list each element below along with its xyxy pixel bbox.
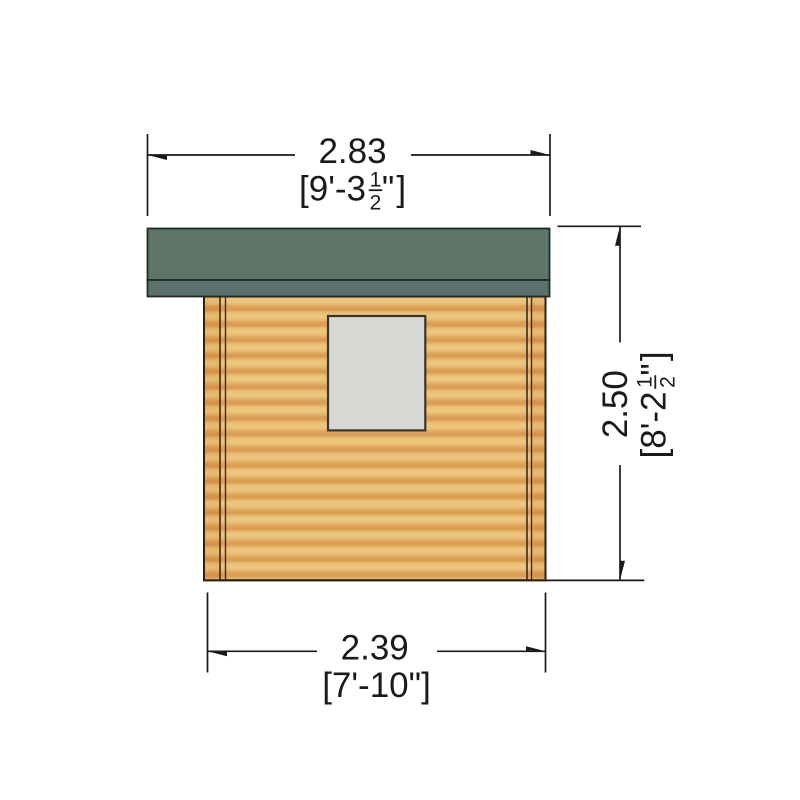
svg-text:1: 1 bbox=[370, 168, 382, 191]
svg-text:1: 1 bbox=[633, 376, 656, 388]
svg-text:2.50: 2.50 bbox=[596, 370, 635, 438]
svg-text:[8'-2: [8'-2 bbox=[635, 392, 674, 459]
svg-text:[9'-3: [9'-3 bbox=[299, 170, 366, 209]
svg-text:2.39: 2.39 bbox=[341, 629, 409, 668]
svg-text:2: 2 bbox=[370, 191, 382, 214]
svg-text:"]: "] bbox=[382, 170, 408, 209]
svg-text:2: 2 bbox=[656, 376, 679, 388]
svg-text:[7'-10"]: [7'-10"] bbox=[322, 666, 431, 705]
svg-text:2.83: 2.83 bbox=[318, 132, 386, 171]
svg-text:"]: "] bbox=[635, 349, 674, 375]
